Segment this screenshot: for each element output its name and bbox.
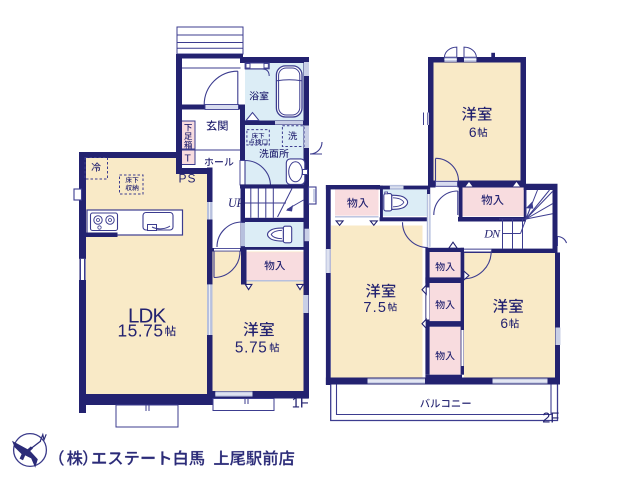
svg-text:6: 6 (469, 125, 477, 140)
svg-text:5.75: 5.75 (235, 340, 268, 357)
svg-text:T: T (184, 153, 191, 165)
svg-text:1F: 1F (292, 395, 309, 411)
svg-text:7.5: 7.5 (363, 300, 387, 316)
svg-text:6: 6 (500, 316, 508, 331)
svg-text:2F: 2F (542, 410, 559, 426)
svg-text:UP: UP (228, 196, 245, 210)
svg-text:15.75: 15.75 (117, 321, 163, 341)
svg-text:PS: PS (179, 172, 197, 186)
svg-text:DN: DN (483, 226, 501, 240)
